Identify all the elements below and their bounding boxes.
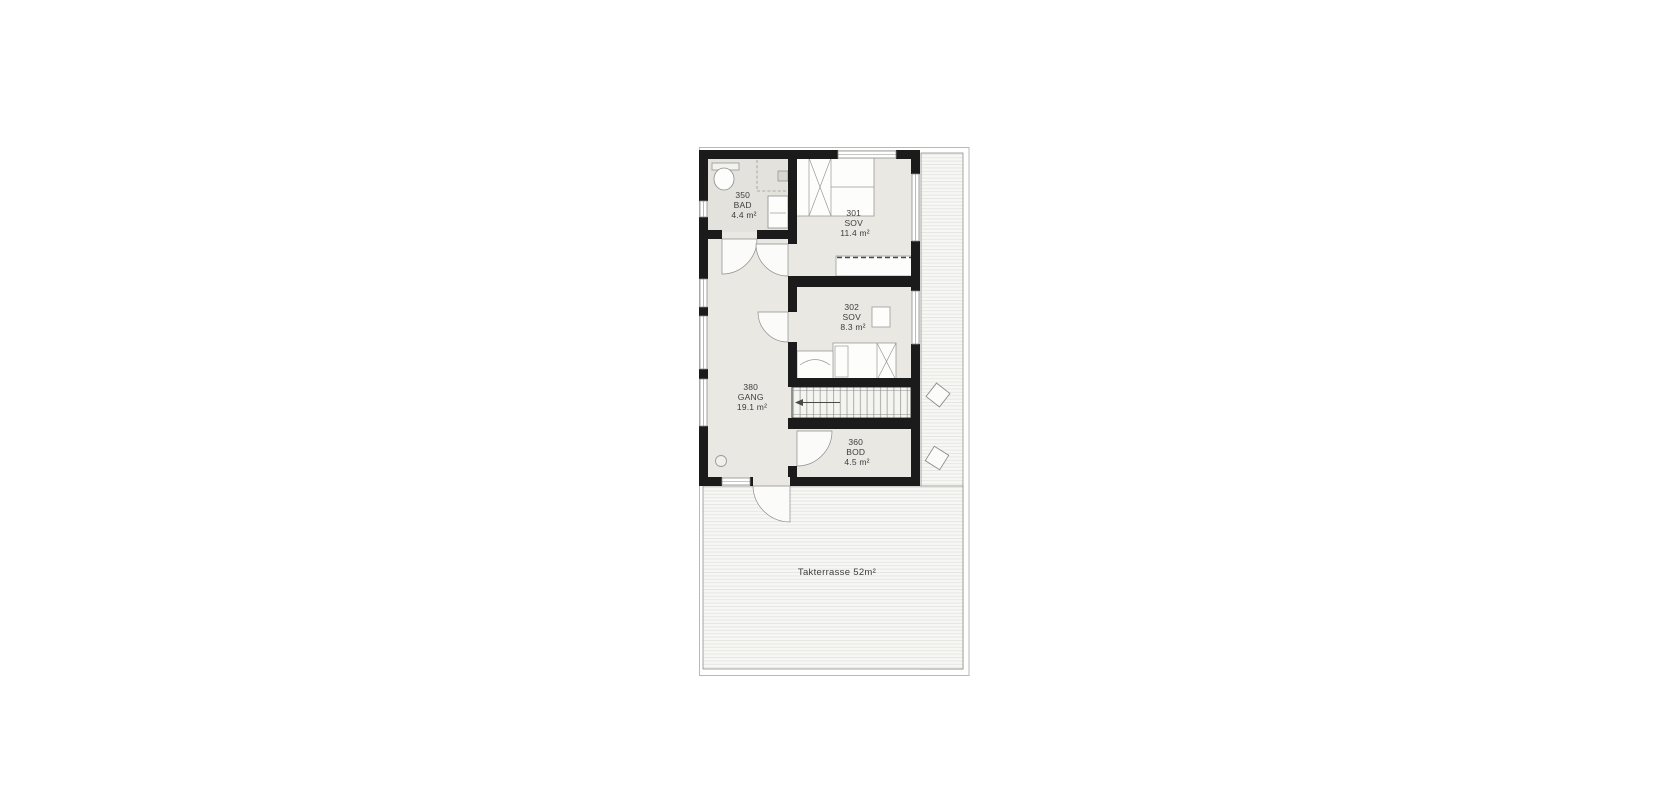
window: [838, 151, 896, 158]
wall: [790, 477, 920, 486]
window: [722, 478, 750, 485]
floor-drain-icon: [716, 456, 727, 467]
wall: [699, 230, 722, 239]
wall: [699, 150, 708, 201]
window: [700, 379, 707, 426]
floor-plan: 350 BAD 4.4 m² 301 SOV 11.4 m² 302 SOV 8…: [699, 147, 971, 677]
wall: [699, 217, 708, 279]
wall: [699, 150, 838, 159]
window: [912, 174, 919, 241]
wall: [797, 276, 920, 287]
wall: [911, 344, 920, 486]
wall: [699, 369, 708, 379]
terrace-label: Takterrasse 52m²: [798, 567, 876, 578]
dresser-icon: [797, 351, 833, 381]
wall: [750, 477, 753, 486]
wall: [788, 418, 920, 429]
wardrobe-icon: [836, 256, 912, 276]
window: [700, 316, 707, 369]
sink-icon: [768, 196, 788, 228]
wall: [788, 239, 797, 244]
nightstand-icon: [872, 307, 890, 327]
window: [700, 201, 707, 217]
window: [912, 291, 919, 344]
wall: [788, 276, 797, 312]
shower-icon: [778, 171, 788, 181]
wall: [788, 466, 797, 477]
window: [700, 279, 707, 307]
staircase: [792, 387, 911, 418]
wall: [699, 307, 708, 316]
wall: [911, 150, 920, 174]
bed-icon: [835, 346, 848, 377]
wall: [788, 150, 797, 239]
wall: [699, 477, 722, 486]
toilet-icon: [714, 168, 734, 190]
wall: [788, 378, 920, 387]
page-background: 350 BAD 4.4 m² 301 SOV 11.4 m² 302 SOV 8…: [0, 0, 1670, 800]
